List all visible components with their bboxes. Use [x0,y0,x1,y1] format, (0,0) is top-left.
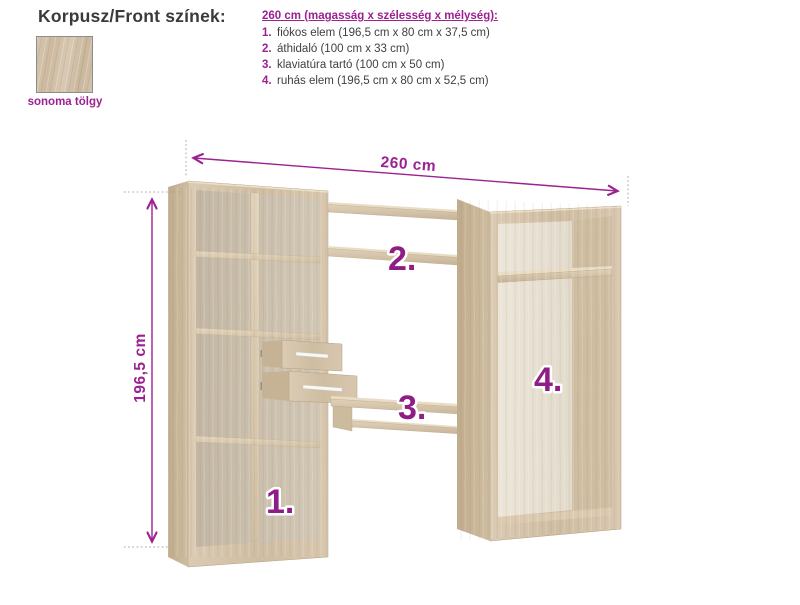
upper-drawer-side [262,340,282,368]
lower-drawer-side [262,371,289,401]
part-label-3: 3. [398,389,426,427]
part-label-2: 2. [388,240,416,278]
page: Korpusz/Front színek: sonoma tölgy 260 c… [0,0,800,605]
part-label-1: 1. [266,483,294,521]
height-dimension-label: 196,5 cm [132,333,149,403]
furniture-diagram: 260 cm 196,5 cm 1. 2. 3. 4. [0,0,800,605]
part-label-4: 4. [534,361,562,399]
desk-left-bracket [333,406,352,431]
width-dimension-label: 260 cm [380,154,437,175]
